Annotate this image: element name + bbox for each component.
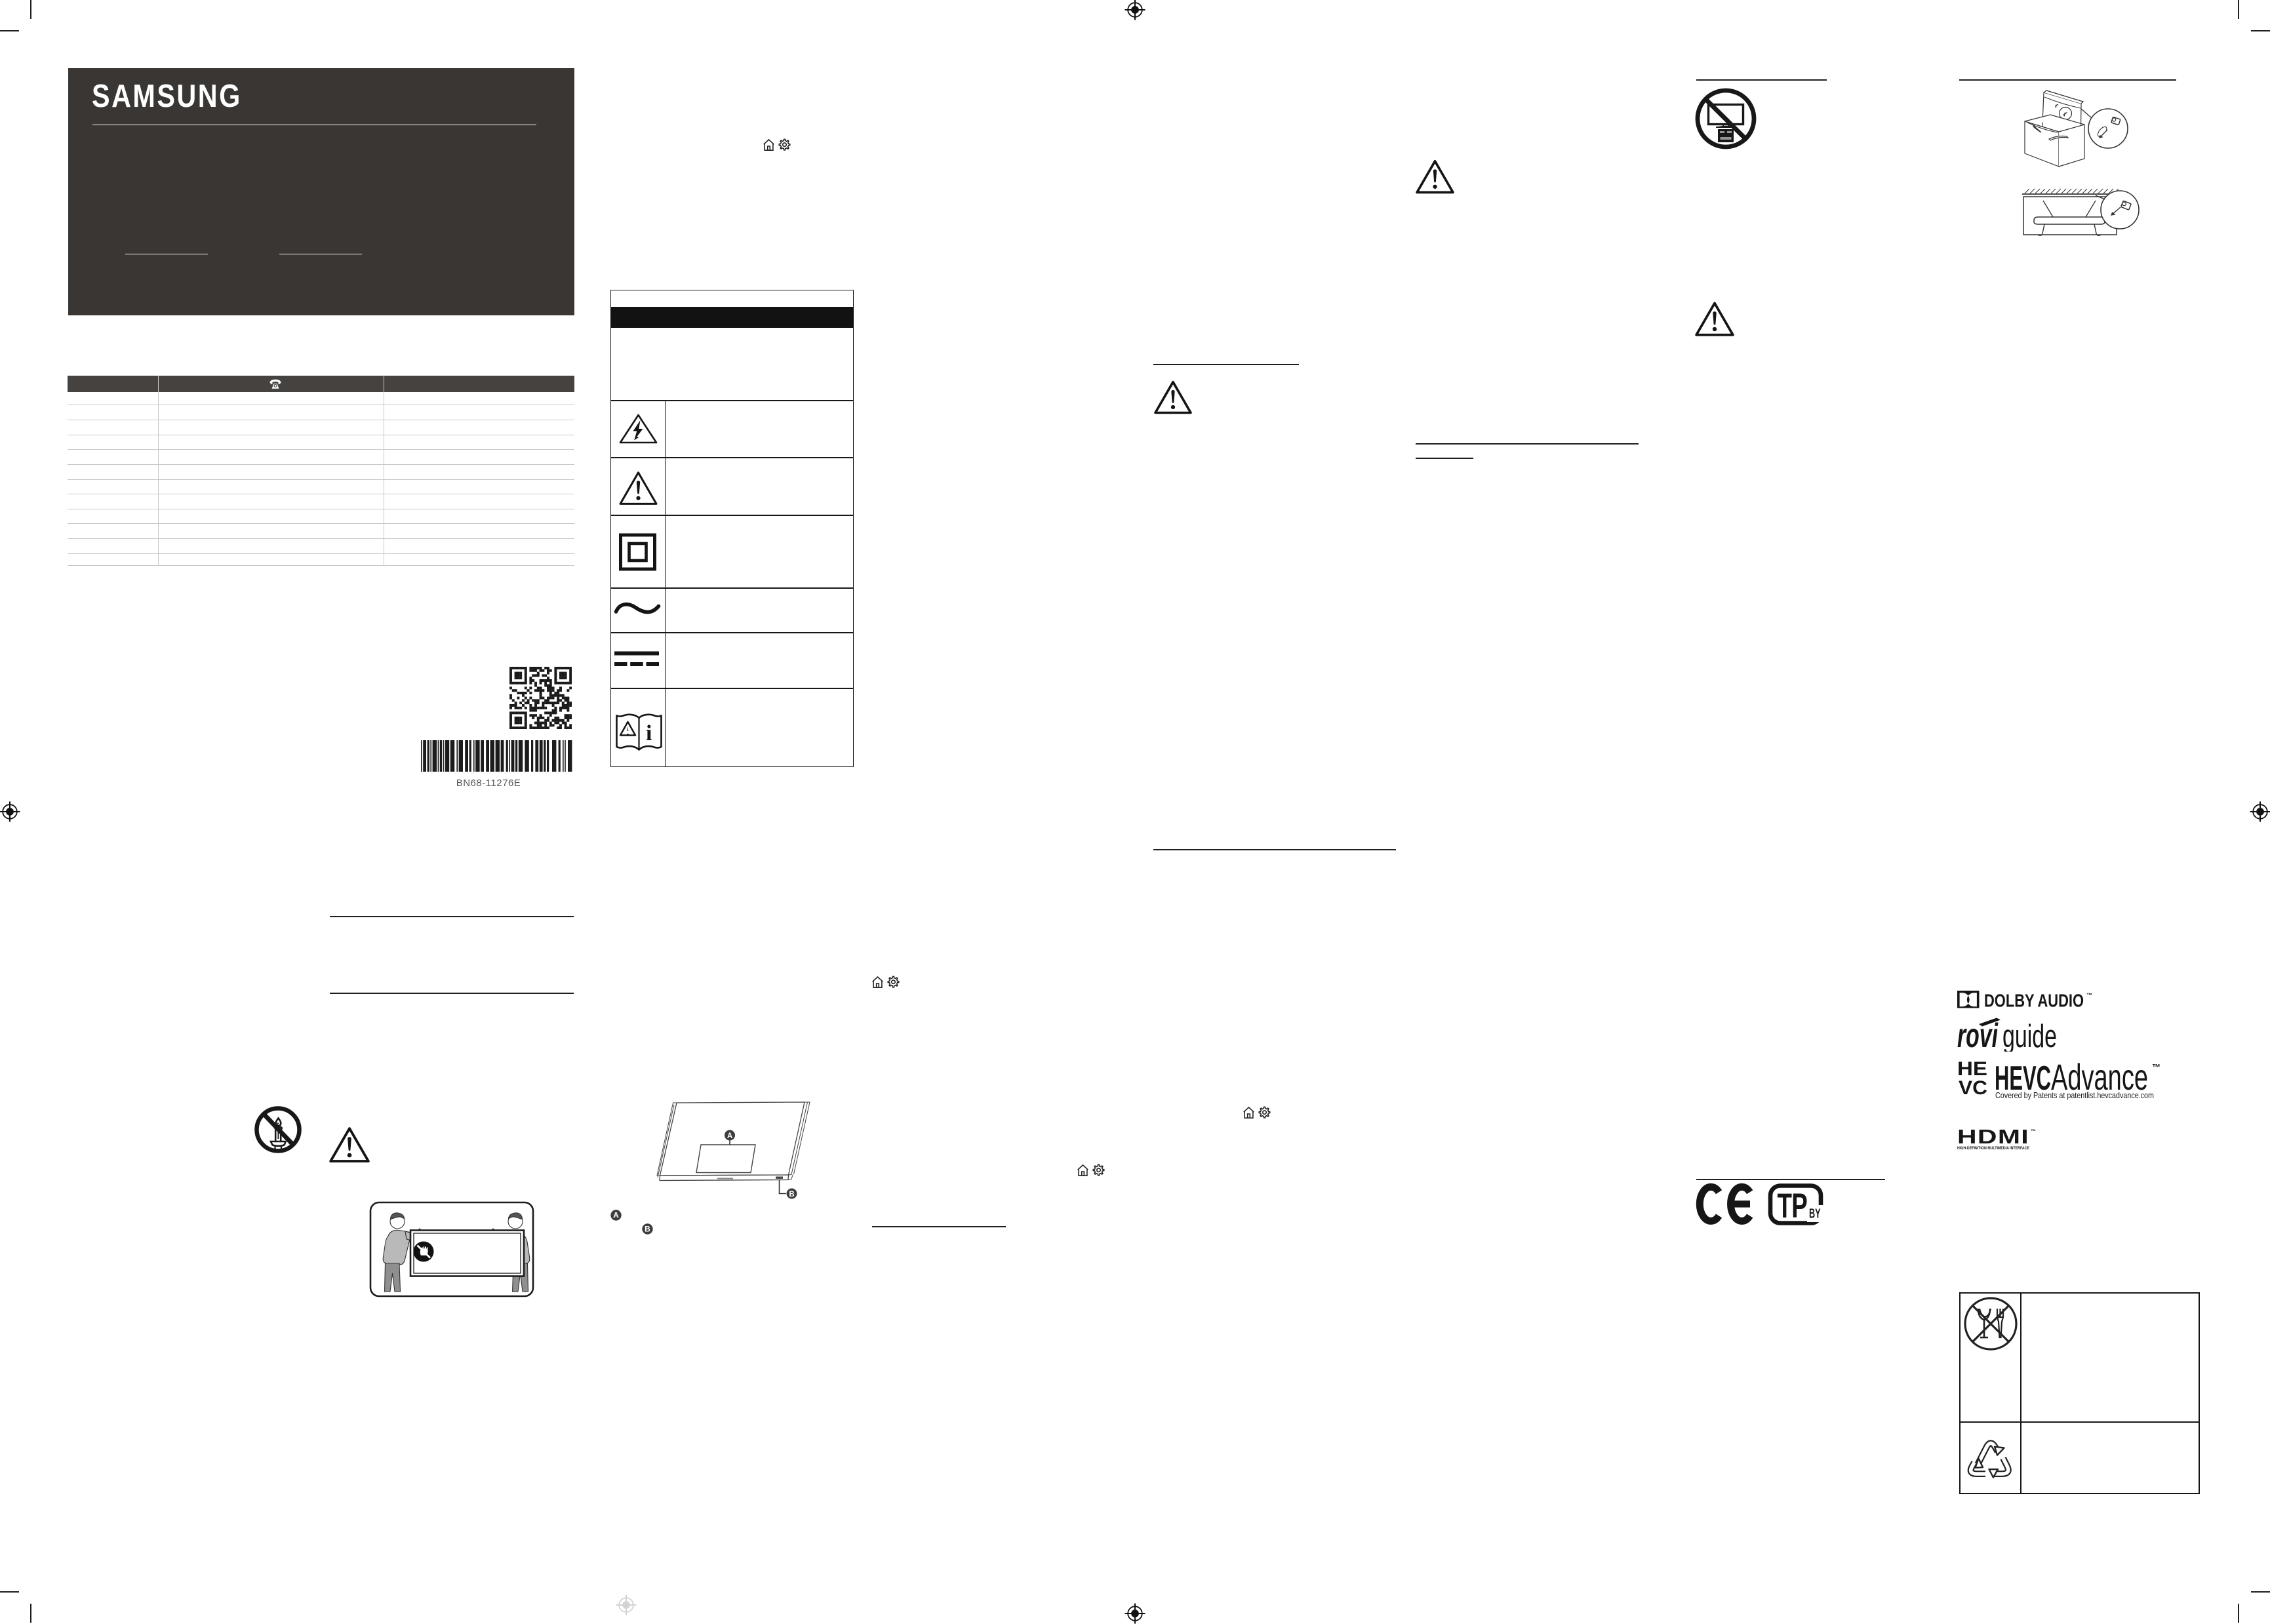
svg-text:VC: VC [1959,1077,1987,1099]
svg-text:BY: BY [1809,1206,1821,1221]
svg-text:i: i [646,721,652,745]
svg-text:™: ™ [2031,1128,2036,1134]
svg-text:A: A [613,1210,619,1219]
svg-text:HIGH-DEFINITION MULTIMEDIA INT: HIGH-DEFINITION MULTIMEDIA INTERFACE [1957,1146,2029,1151]
svg-text:rovi: rovi [1957,1017,1999,1052]
svg-text:DOLBY AUDIO: DOLBY AUDIO [1984,991,2084,1011]
svg-text:TP: TP [1778,1186,1808,1225]
svg-text:B: B [645,1224,650,1233]
svg-text:HDMI: HDMI [1957,1127,2029,1148]
svg-text:guide: guide [2002,1019,2057,1052]
svg-text:™: ™ [2086,992,2092,999]
svg-text:B: B [789,1191,794,1198]
svg-text:Covered by Patents at patentli: Covered by Patents at patentlist.hevcadv… [1995,1091,2154,1100]
svg-text:A: A [727,1132,732,1140]
svg-text:™: ™ [2152,1062,2160,1072]
